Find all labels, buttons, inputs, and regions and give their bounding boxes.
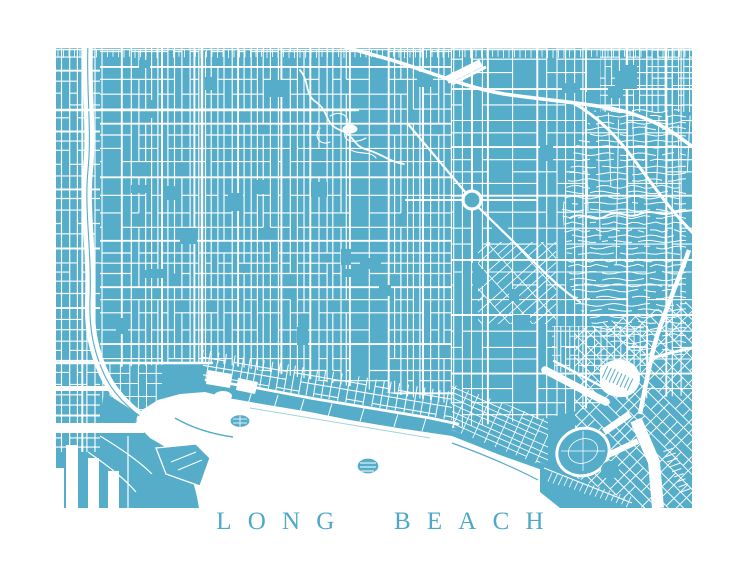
- svg-text:LONG BEACH: LONG BEACH: [216, 508, 559, 535]
